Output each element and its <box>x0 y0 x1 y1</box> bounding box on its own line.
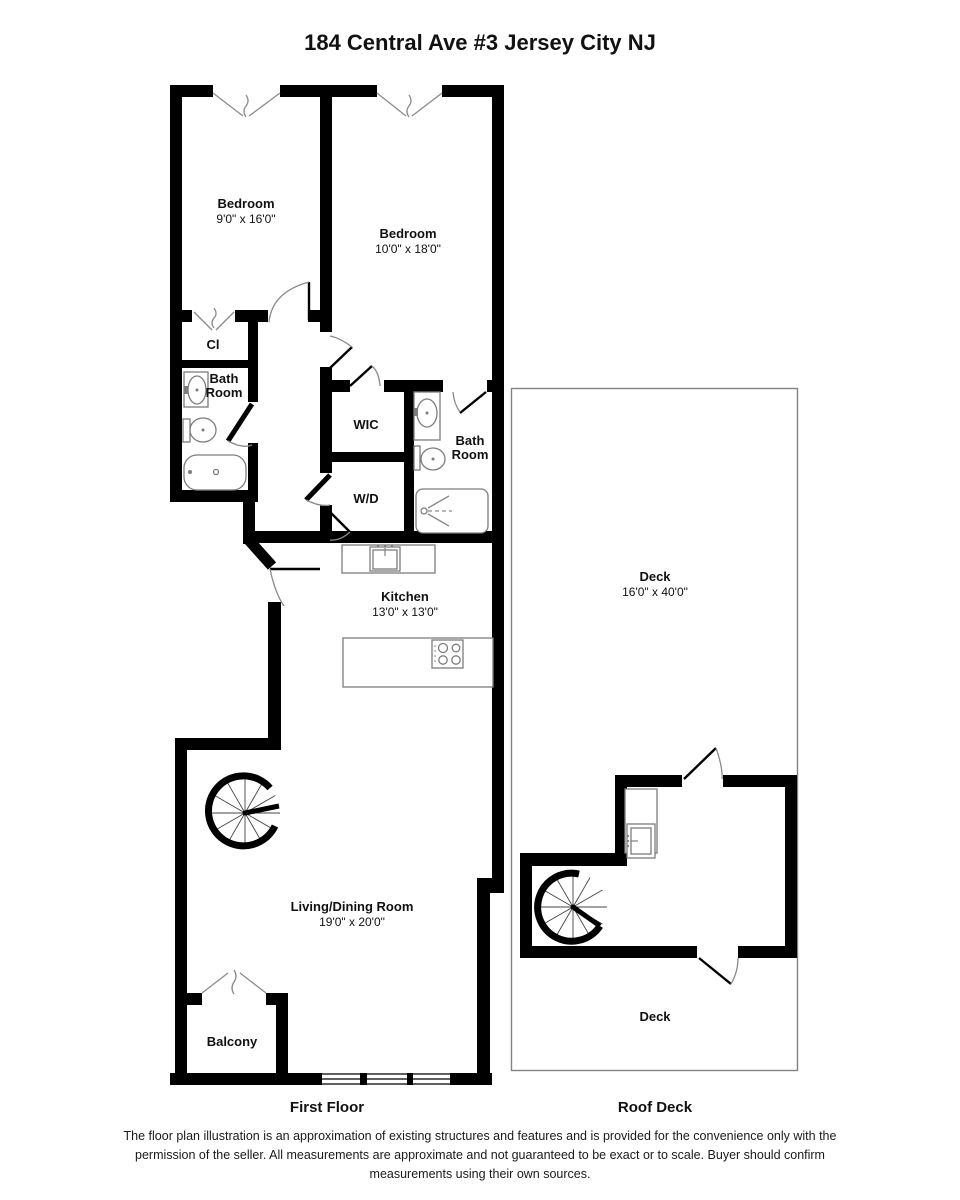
window-icon <box>322 1073 360 1085</box>
bedroom1-label: Bedroom <box>217 196 274 211</box>
toilet-icon <box>183 418 216 442</box>
laundry-door <box>306 475 330 505</box>
window-icon <box>413 1073 450 1085</box>
closet-label: Cl <box>207 337 220 352</box>
kitchen-door <box>270 569 320 606</box>
bedroom2-dims: 10'0" x 18'0" <box>375 242 441 256</box>
deck-outline <box>512 389 798 1071</box>
first-floor-plan: Bedroom 9'0" x 16'0" Bedroom 10'0" x 18'… <box>170 85 504 1116</box>
bedroom1-door <box>269 282 309 322</box>
first-floor-label: First Floor <box>290 1099 364 1116</box>
bath2-label-line1: Bath <box>456 433 485 448</box>
bedroom1-dims: 9'0" x 16'0" <box>216 212 275 226</box>
spiral-stairs-icon <box>538 873 607 941</box>
balcony-double-door-icon <box>202 970 266 994</box>
wd-label: W/D <box>353 491 378 506</box>
spiral-stairs-icon <box>208 776 280 848</box>
bulkhead-walls <box>520 775 797 958</box>
bulkhead-bottom-door <box>699 958 738 984</box>
sink-icon <box>184 372 208 407</box>
deck-lower-label: Deck <box>639 1009 671 1024</box>
window-icon <box>367 1073 407 1085</box>
kitchen-label: Kitchen <box>381 589 429 604</box>
bedroom2-label: Bedroom <box>379 226 436 241</box>
bath1-label-line2: Room <box>206 385 243 400</box>
first-floor-walls <box>170 85 504 1085</box>
kitchen-dims: 13'0" x 13'0" <box>372 605 438 619</box>
living-label: Living/Dining Room <box>291 899 414 914</box>
shower-icon <box>416 489 488 533</box>
wic-label: WIC <box>353 417 379 432</box>
bath2-label-line2: Room <box>452 447 489 462</box>
cooktop-icon <box>432 640 463 668</box>
kitchen-sink-icon <box>370 545 400 571</box>
sink-icon <box>627 824 655 858</box>
balcony-label: Balcony <box>207 1034 258 1049</box>
roof-deck-label: Roof Deck <box>618 1099 693 1116</box>
bath2-door <box>453 392 486 413</box>
bath1-label-line1: Bath <box>210 371 239 386</box>
sink-icon <box>414 392 440 440</box>
bay-window-icon <box>213 93 280 117</box>
bathtub-icon <box>184 455 246 490</box>
bay-window-icon <box>377 93 442 117</box>
deck-upper-label: Deck <box>639 569 671 584</box>
wic-door <box>350 366 380 386</box>
kitchen-island <box>343 638 493 687</box>
bath1-door <box>228 404 252 446</box>
floor-plan-page: 184 Central Ave #3 Jersey City NJ <box>0 0 960 1200</box>
disclaimer-text: The floor plan illustration is an approx… <box>122 1127 838 1183</box>
deck-upper-dims: 16'0" x 40'0" <box>622 585 688 599</box>
bulkhead-top-door <box>684 748 722 779</box>
toilet-icon <box>414 446 445 470</box>
floor-plan-drawing: Bedroom 9'0" x 16'0" Bedroom 10'0" x 18'… <box>0 0 960 1200</box>
bedroom2-door <box>330 336 352 368</box>
closet-double-door-icon <box>194 308 234 330</box>
roof-deck-plan: Deck 16'0" x 40'0" Deck Roof Deck <box>512 389 798 1117</box>
living-dims: 19'0" x 20'0" <box>319 915 385 929</box>
